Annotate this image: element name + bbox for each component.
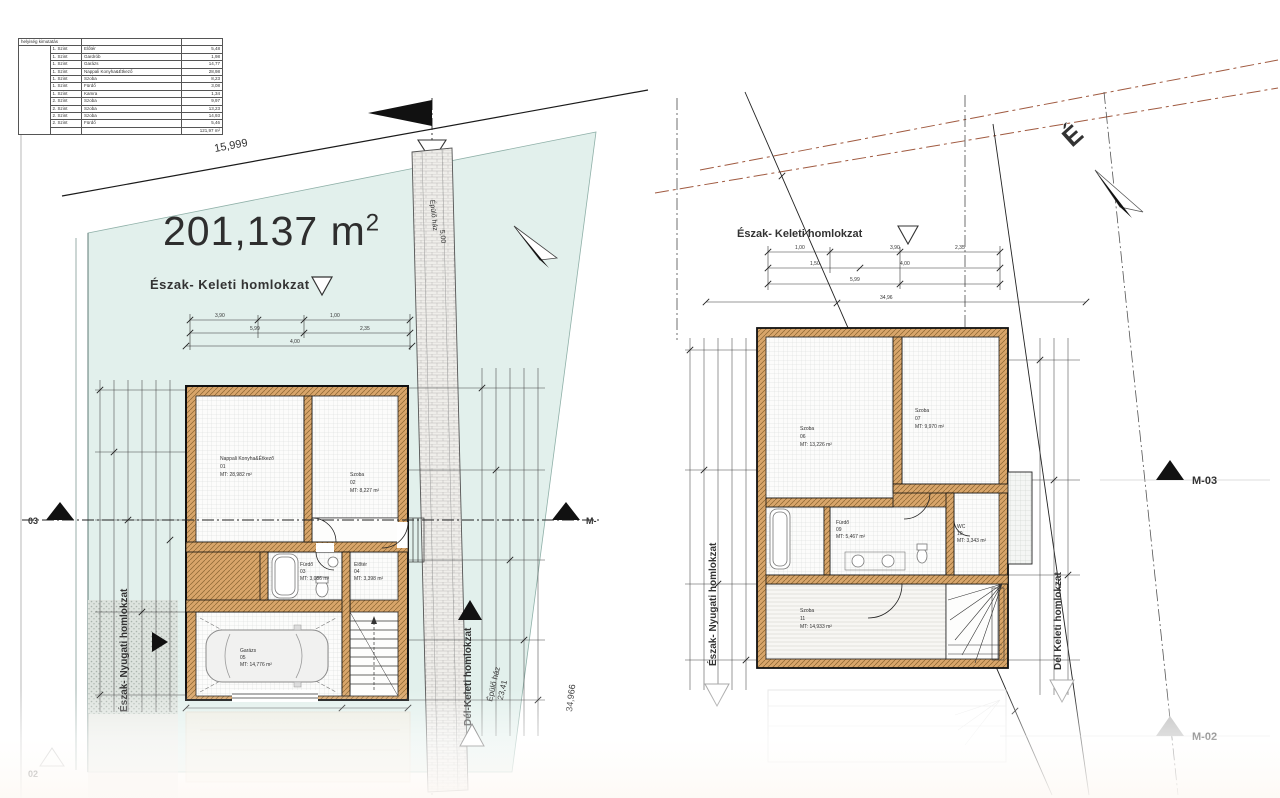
schedule-row: 1. SzintNappali Konyha&Étkező28,98 (19, 68, 223, 75)
svg-text:3,90: 3,90 (215, 313, 225, 319)
car-icon (206, 630, 328, 682)
svg-text:1,00: 1,00 (330, 313, 340, 319)
svg-text:MT: 3,086 m²: MT: 3,086 m² (300, 576, 330, 582)
svg-text:2,35: 2,35 (360, 326, 370, 332)
svg-text:Nappali Konyha&Étkező: Nappali Konyha&Étkező (220, 455, 274, 462)
svg-text:MT: 3,398 m²: MT: 3,398 m² (354, 576, 384, 582)
svg-text:5,99: 5,99 (250, 326, 260, 332)
facade-right-label: Dél Keleti homlokzat (1053, 572, 1064, 670)
svg-text:WC: WC (957, 524, 966, 530)
svg-text:1,50: 1,50 (810, 261, 820, 267)
parcel-area-label: 201,137 m2 (163, 208, 380, 255)
balcony (1008, 472, 1032, 564)
svg-text:MT: 13,226 m²: MT: 13,226 m² (800, 442, 832, 448)
svg-text:MT: 14,933 m²: MT: 14,933 m² (800, 624, 832, 630)
svg-text:04: 04 (354, 569, 360, 575)
svg-text:03: 03 (300, 569, 306, 575)
north-label: É (1056, 119, 1089, 153)
section-flag-icon (368, 100, 432, 126)
facade-left-label: Észak- Nyugati homlokzat (706, 542, 719, 666)
svg-text:Fürdő: Fürdő (300, 562, 313, 568)
section-triangle-icon (1156, 460, 1184, 480)
right-boundary-lines (655, 60, 1278, 193)
section-triangle-icon (46, 502, 74, 520)
schedule-row: 2. SzintFürdő5,46 (19, 120, 223, 127)
svg-text:05: 05 (240, 655, 246, 661)
svg-text:Szoba: Szoba (800, 608, 814, 614)
facade-triangle-icon (898, 226, 918, 244)
svg-text:Szoba: Szoba (915, 408, 929, 414)
svg-text:MT: 28,982 m²: MT: 28,982 m² (220, 472, 252, 478)
svg-text:4,00: 4,00 (900, 261, 910, 267)
bottom-fade (0, 688, 1280, 798)
svg-text:MT: 5,467 m²: MT: 5,467 m² (836, 534, 866, 540)
schedule-title: helyiség kimutatás (19, 39, 82, 46)
svg-text:3,90: 3,90 (890, 245, 900, 251)
boundary-dim-top: 15,999 (213, 137, 248, 155)
svg-text:07: 07 (915, 416, 921, 422)
right-house (757, 328, 1032, 668)
svg-text:06: 06 (800, 434, 806, 440)
schedule-total-row: 121,97 m² (19, 127, 223, 134)
svg-text:MT: 14,776 m²: MT: 14,776 m² (240, 662, 272, 668)
svg-text:2,35: 2,35 (955, 245, 965, 251)
svg-text:34,96: 34,96 (880, 295, 893, 301)
svg-text:Előtér: Előtér (354, 562, 367, 568)
right-dim-tiers (703, 246, 1089, 305)
svg-text:1,00: 1,00 (795, 245, 805, 251)
schedule-header-row: helyiség kimutatás (19, 39, 223, 46)
right-facade-top: Észak- Keleti homlokzat (737, 226, 918, 244)
svg-text:Szoba: Szoba (800, 426, 814, 432)
section-marker-m03: M-03 (1100, 460, 1270, 487)
svg-text:MT: 9,970 m²: MT: 9,970 m² (915, 424, 945, 430)
svg-text:09: 09 (836, 527, 842, 533)
section-marker-right: M- (586, 516, 597, 526)
strip-dim: 5,00 (438, 229, 446, 243)
section-triangle-icon (552, 502, 580, 520)
facade-top-label: Észak- Keleti homlokzat (737, 227, 863, 240)
schedule-row: 1. SzintGardrób1,98 (19, 53, 223, 60)
svg-text:10: 10 (957, 531, 963, 537)
room-schedule-table: helyiség kimutatás 1. SzintElőtér5,48 1.… (18, 38, 223, 135)
schedule-total: 121,97 m² (182, 127, 223, 134)
section-marker-left: 03 (28, 516, 38, 526)
schedule-row: 2. SzintSzoba13,23 (19, 105, 223, 112)
schedule-row: 2. SzintSzoba14,93 (19, 113, 223, 120)
schedule-row: 1. SzintKamra1,34 (19, 90, 223, 97)
floorplan-sheet: helyiség kimutatás 1. SzintElőtér5,48 1.… (0, 0, 1280, 798)
svg-text:11: 11 (800, 616, 805, 622)
left-house (186, 386, 424, 702)
schedule-row: 1. SzintFürdő3,08 (19, 83, 223, 90)
facade-top-label: Észak- Keleti homlokzat (150, 277, 310, 292)
svg-text:MT: 3,343 m²: MT: 3,343 m² (957, 538, 987, 544)
svg-text:Szoba: Szoba (350, 472, 364, 478)
svg-text:MT: 8,227 m²: MT: 8,227 m² (350, 488, 380, 494)
svg-text:Fürdő: Fürdő (836, 520, 849, 526)
north-arrow-icon: É (1056, 119, 1143, 218)
schedule-row: 2. SzintSzoba9,97 (19, 98, 223, 105)
right-dim-numbers: 1,00 3,90 2,35 1,50 4,00 5,99 34,96 (795, 245, 965, 301)
svg-text:5,99: 5,99 (850, 277, 860, 283)
svg-text:4,00: 4,00 (290, 339, 300, 345)
svg-text:Garázs: Garázs (240, 648, 257, 654)
schedule-row: 1. SzintSzoba8,23 (19, 76, 223, 83)
svg-text:02: 02 (350, 480, 356, 486)
schedule-row: 1. SzintElőtér5,48 (19, 46, 223, 53)
schedule-row: 1. SzintGarázs14,77 (19, 61, 223, 68)
svg-text:M-03: M-03 (1192, 475, 1217, 487)
svg-text:01: 01 (220, 464, 226, 470)
